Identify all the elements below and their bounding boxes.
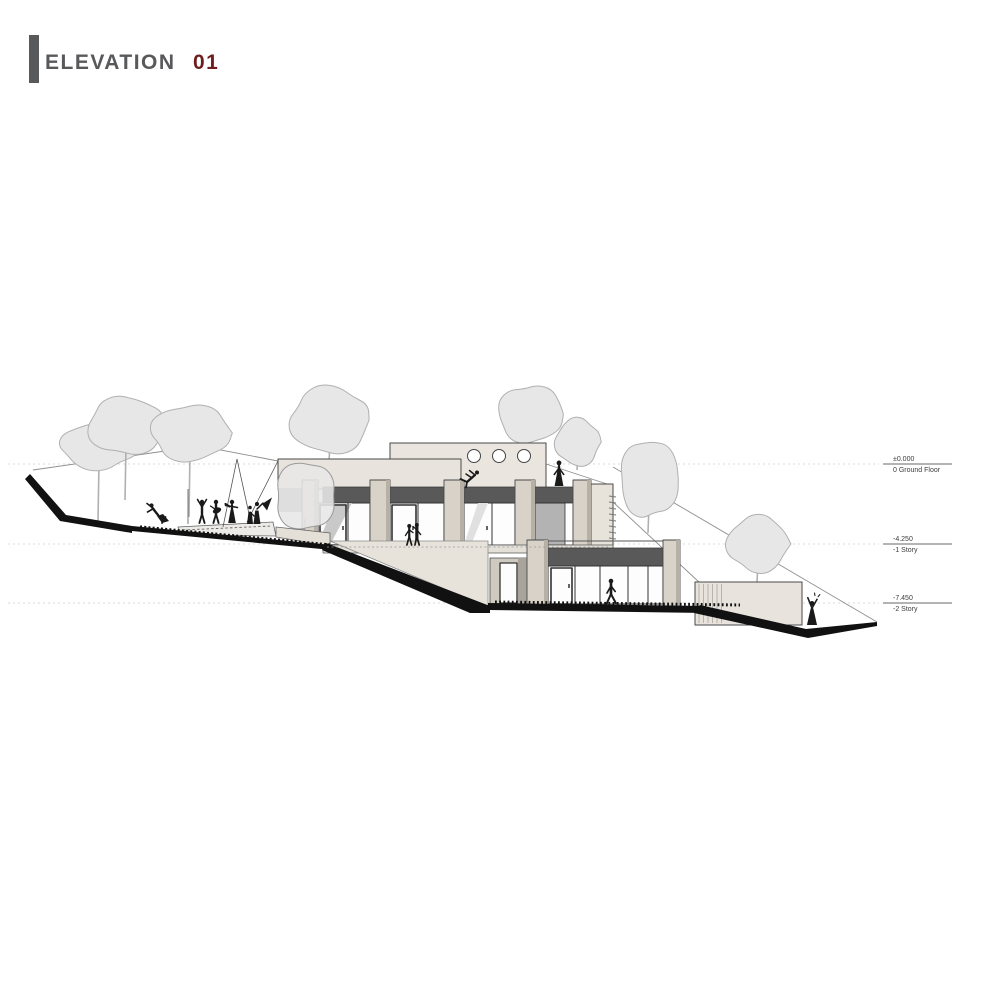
round-windows [468,450,531,463]
level-name: -1 Story [893,547,918,554]
terrain-edge-left [25,474,132,533]
elevation-drawing: ELEVATION 01 [0,0,1000,1000]
page-title: ELEVATION [45,51,176,74]
figure-celebrating-woman [807,593,820,625]
figure-roof-woman [554,460,563,486]
level-value: -7.450 [893,595,913,602]
tree [621,442,678,533]
elevation-sheet: ELEVATION 01 [0,0,1000,1000]
figure-dancers [247,498,272,525]
level-marker: -7.450 -2 Story [883,595,952,613]
level-name: -2 Story [893,606,918,613]
pier [444,480,464,546]
pier [527,540,548,605]
page-title-number: 01 [193,51,219,74]
round-window-icon [493,450,506,463]
figure-performer-arms-raised [198,500,207,524]
narrow-door [500,563,517,603]
tree [278,463,334,533]
figure-conductor [147,503,169,523]
lower-fascia [548,548,663,566]
window-pane [565,503,573,545]
right-wall [591,484,613,552]
title-block: ELEVATION 01 [29,35,219,83]
pier [573,480,591,546]
tree [150,405,232,517]
figure-violinist [226,500,238,523]
level-markers: ±0.000 0 Ground Floor -4.250 -1 Story -7… [883,456,952,613]
title-bar [29,35,39,83]
pier [370,480,390,546]
level-name: 0 Ground Floor [893,467,941,474]
round-window-icon [468,450,481,463]
round-window-icon [518,450,531,463]
pier [663,540,680,606]
tree [289,385,369,462]
level-value: ±0.000 [893,456,914,463]
tree-foreground [278,463,334,533]
tree [499,386,564,448]
wall-shade [518,558,527,604]
level-marker: -4.250 -1 Story [883,536,952,554]
tree [725,514,790,582]
lower-glazing [548,566,663,604]
figure-guitarist [211,500,223,523]
pier [515,480,535,546]
level-marker: ±0.000 0 Ground Floor [883,456,952,474]
level-value: -4.250 [893,536,913,543]
